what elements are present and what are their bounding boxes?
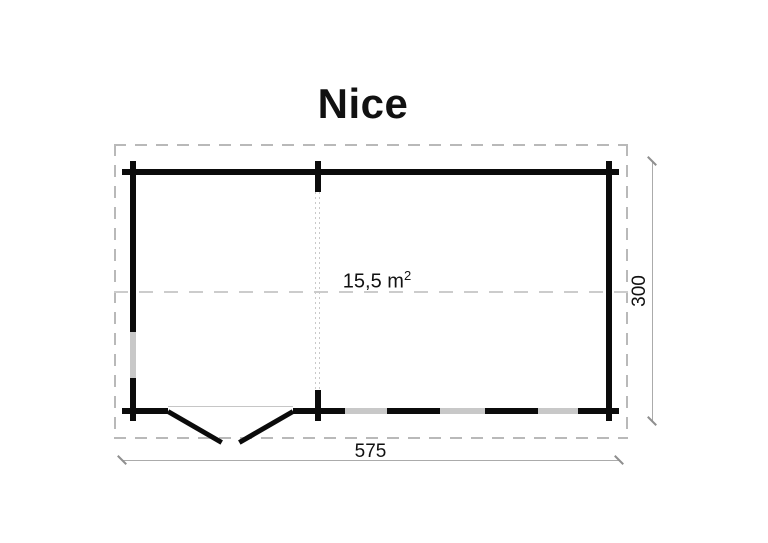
window-bottom-wall-1 — [345, 408, 387, 414]
roof-outline-top — [114, 144, 628, 146]
roof-outline-bottom — [114, 437, 628, 439]
window-left-wall — [130, 332, 136, 378]
height-dimension-label: 300 — [629, 275, 651, 307]
window-bottom-wall-2 — [440, 408, 485, 414]
wall-left-lower — [130, 378, 136, 421]
door-threshold — [168, 406, 293, 407]
width-dimension-label: 575 — [122, 441, 619, 463]
window-bottom-wall-3 — [538, 408, 578, 414]
floorplan-canvas: Nice 15,5 m2 575 300 — [0, 0, 768, 543]
area-label: 15,5 m2 — [133, 268, 621, 294]
door-leaf-right — [238, 409, 294, 444]
door-leaf-left — [167, 409, 223, 444]
wall-left-upper — [130, 161, 136, 332]
wall-bottom-segment — [293, 408, 345, 414]
partition-tick-bottom — [315, 390, 321, 421]
wall-top — [122, 169, 619, 175]
wall-bottom-segment — [578, 408, 619, 414]
wall-bottom-segment — [122, 408, 168, 414]
area-superscript: 2 — [404, 268, 411, 283]
area-value: 15,5 m — [343, 271, 404, 293]
partition-tick-top — [315, 161, 321, 192]
wall-bottom-segment — [387, 408, 440, 414]
wall-bottom-segment — [485, 408, 538, 414]
height-dimension-line — [652, 161, 653, 421]
plan-title: Nice — [106, 80, 620, 128]
